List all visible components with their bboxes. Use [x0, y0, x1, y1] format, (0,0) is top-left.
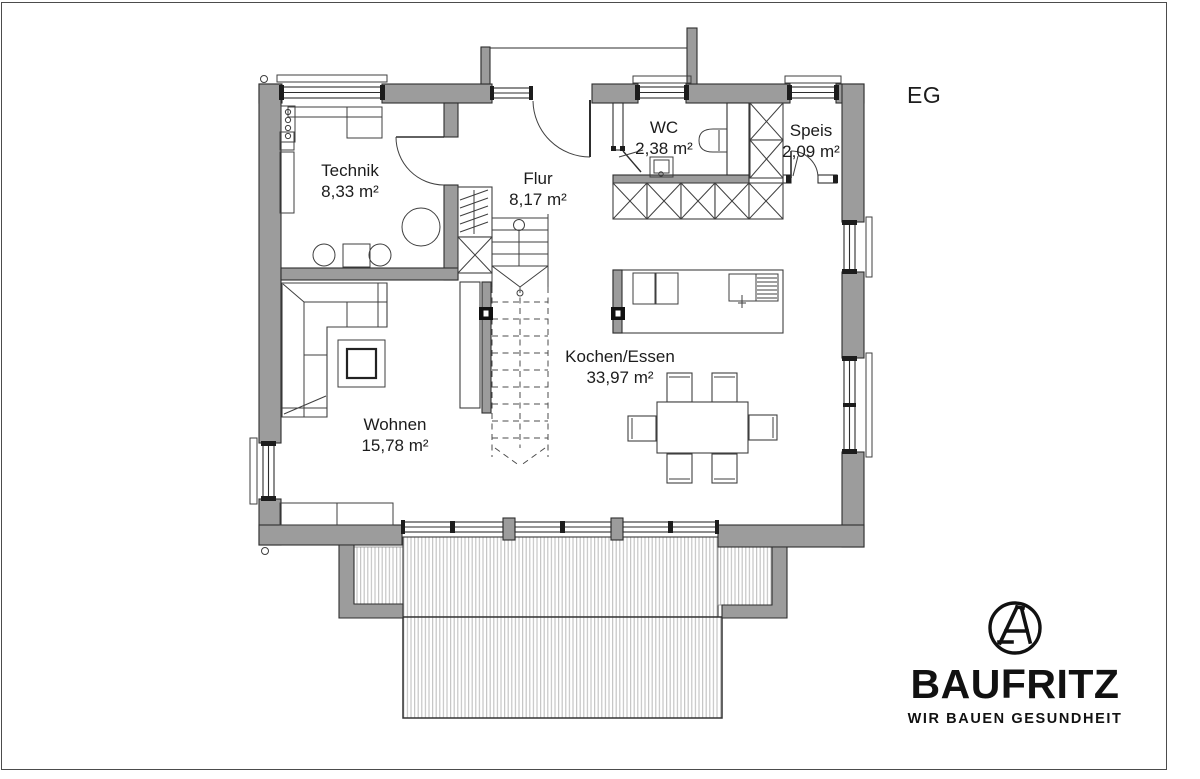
- tank-small: [369, 244, 391, 266]
- room-label-technik: Technik 8,33 m²: [321, 160, 379, 202]
- window-terrace-3: [623, 520, 719, 534]
- room-label-wohnen: Wohnen 15,78 m²: [361, 414, 428, 456]
- terrace-deck: [354, 537, 772, 718]
- downspout: [262, 548, 269, 555]
- tank-small: [313, 244, 335, 266]
- structural-post: [611, 307, 625, 320]
- room-label-kochen-essen: Kochen/Essen 33,97 m²: [565, 346, 675, 388]
- window-pier: [503, 518, 515, 540]
- bench: [280, 503, 393, 525]
- room-name: Wohnen: [361, 414, 428, 435]
- wc-partition-left: [613, 103, 623, 150]
- sideboard: [460, 282, 480, 408]
- room-name: Kochen/Essen: [565, 346, 675, 367]
- chair: [667, 454, 692, 483]
- chair: [628, 416, 656, 441]
- chair: [712, 454, 737, 483]
- wardrobe-row: [613, 183, 783, 219]
- dining-table: [657, 402, 748, 453]
- entry-door: [533, 100, 590, 157]
- coffee-table: [338, 340, 385, 387]
- window-wc: [633, 76, 691, 100]
- living-room-furniture: [280, 283, 393, 525]
- wash-basin: [650, 157, 673, 177]
- dining-set: [628, 373, 777, 483]
- room-label-wc: WC 2,38 m²: [635, 117, 693, 159]
- lower-terrace: [403, 617, 722, 718]
- room-area: 15,78 m²: [361, 435, 428, 456]
- room-name: WC: [635, 117, 693, 138]
- kitchen-island: [611, 270, 783, 333]
- cabinet: [280, 132, 294, 150]
- room-area: 8,17 m²: [509, 189, 567, 210]
- room-label-flur: Flur 8,17 m²: [509, 168, 567, 210]
- window-right-upper: [842, 217, 872, 277]
- window-entry-sidelight: [490, 86, 533, 100]
- room-label-speis: Speis 2,09 m²: [782, 120, 840, 162]
- window-terrace-2: [515, 521, 611, 533]
- window-technik: [277, 75, 387, 100]
- appliance: [347, 107, 382, 138]
- wc-partition-right: [727, 103, 749, 175]
- room-name: Technik: [321, 160, 379, 181]
- downspout: [261, 76, 268, 83]
- technik-door: [396, 137, 444, 185]
- structural-post: [479, 307, 493, 320]
- tall-cabinet: [280, 152, 294, 213]
- floor-label: EG: [907, 82, 941, 109]
- room-name: Flur: [509, 168, 567, 189]
- room-area: 8,33 m²: [321, 181, 379, 202]
- stair-wall: [482, 282, 491, 413]
- window-pier: [611, 518, 623, 540]
- toilet: [699, 129, 727, 152]
- heat-unit: [343, 244, 370, 267]
- baufritz-logo: BAUFRITZ WIR BAUEN GESUNDHEIT: [905, 599, 1125, 727]
- window-right-lower: [842, 353, 872, 457]
- window-speis: [785, 76, 841, 100]
- worktop: [288, 107, 382, 117]
- boiler-tank: [402, 208, 440, 246]
- room-area: 2,38 m²: [635, 138, 693, 159]
- staircase: [458, 187, 548, 466]
- coat-closet: [458, 187, 492, 273]
- window-wohnen-left: [250, 438, 276, 504]
- floor-plan-page: Technik 8,33 m² Flur 8,17 m² WC 2,38 m² …: [0, 0, 1200, 779]
- window-terrace-1: [401, 520, 503, 534]
- compass-a-monogram-icon: [986, 599, 1044, 657]
- room-area: 33,97 m²: [565, 367, 675, 388]
- chair: [749, 415, 777, 440]
- room-name: Speis: [782, 120, 840, 141]
- brand-name: BAUFRITZ: [905, 664, 1125, 705]
- chair: [712, 373, 737, 402]
- room-area: 2,09 m²: [782, 141, 840, 162]
- brand-tagline: WIR BAUEN GESUNDHEIT: [905, 711, 1125, 727]
- pantry-shelving: [750, 103, 783, 178]
